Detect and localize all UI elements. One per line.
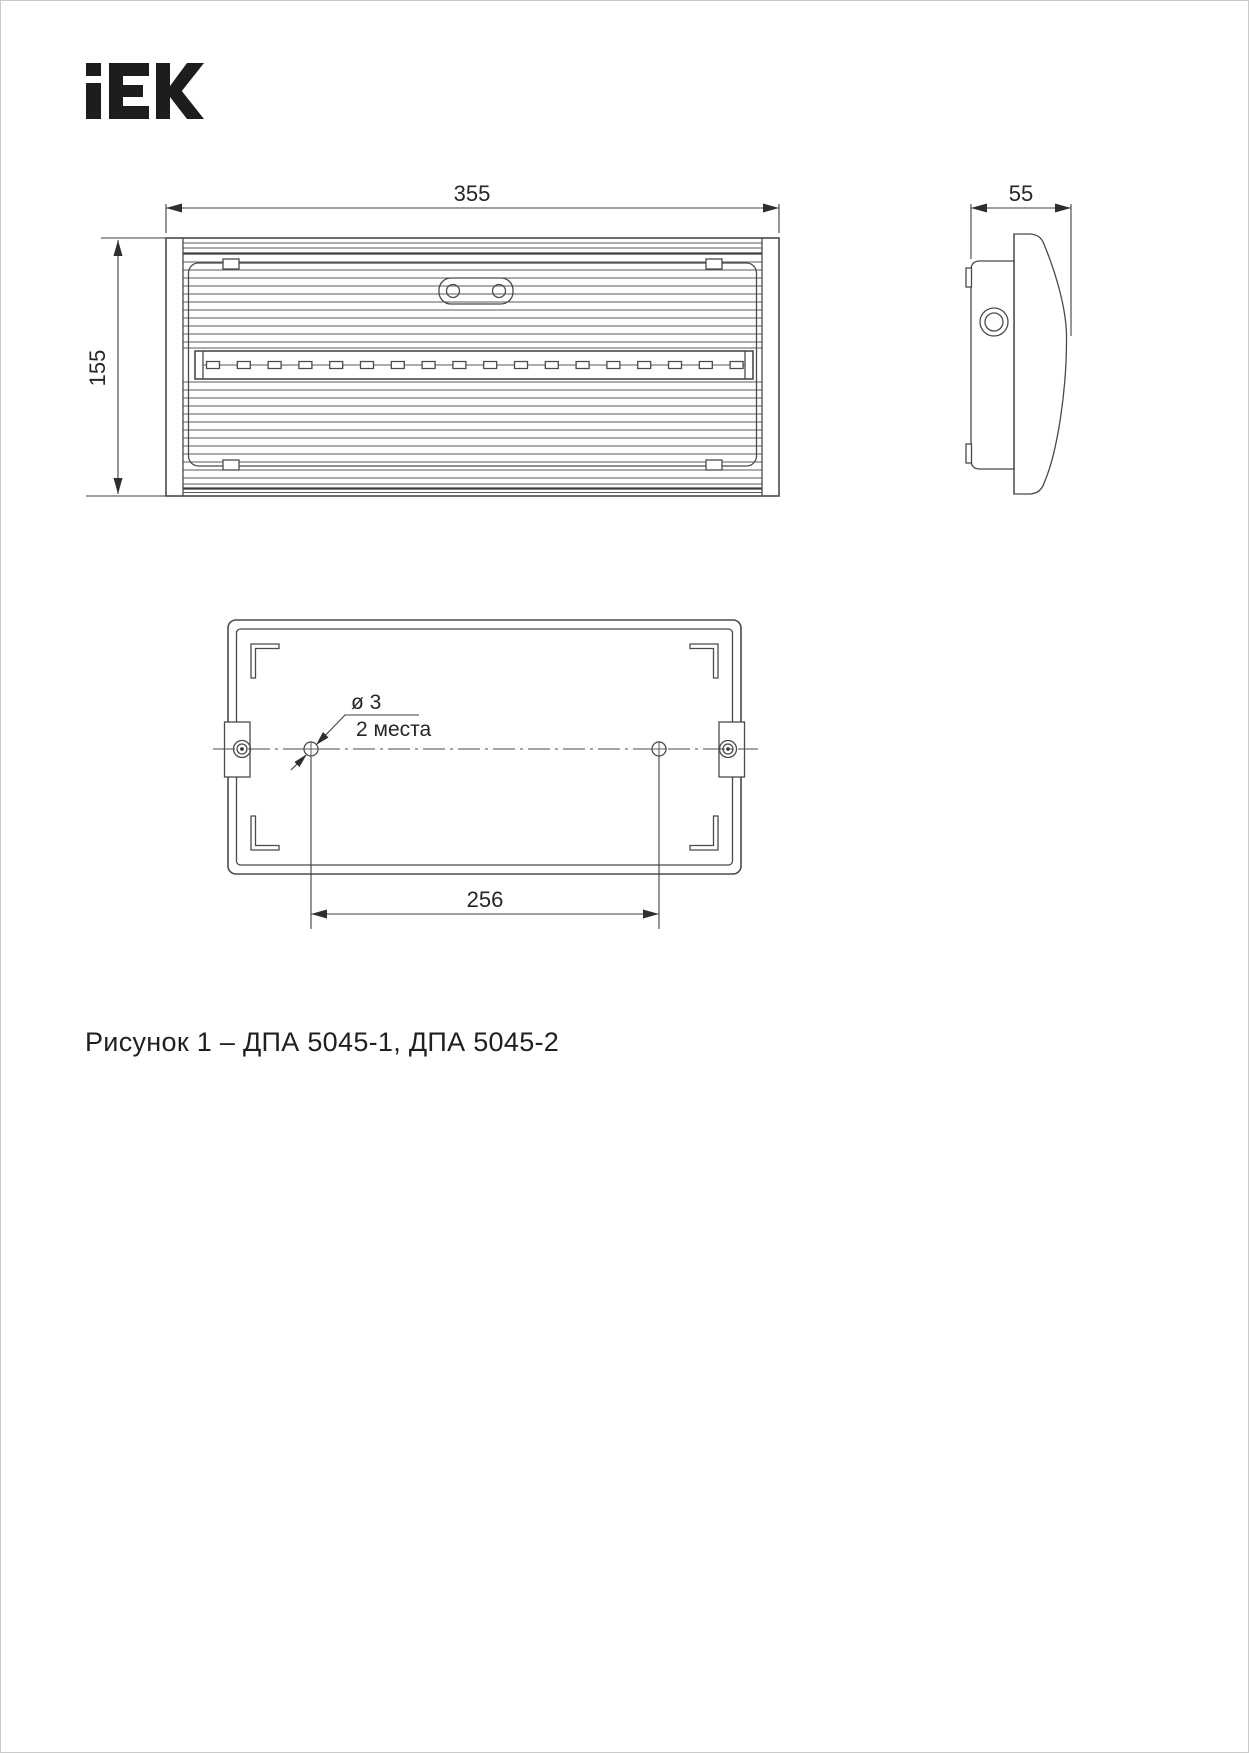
hole-diameter-label: ø 3 <box>351 691 381 714</box>
side-diffuser-profile <box>1014 234 1067 494</box>
dim-front-height-label: 155 <box>85 350 110 387</box>
back-screw-left-dot <box>240 747 244 751</box>
front-view <box>166 238 779 496</box>
figure-caption: Рисунок 1 – ДПА 5045-1, ДПА 5045-2 <box>85 1027 559 1058</box>
back-view <box>213 620 758 874</box>
front-clip-top-right <box>706 259 722 269</box>
dim-hole-spacing-label: 256 <box>467 887 504 912</box>
front-clip-bottom-left <box>223 460 239 470</box>
hole-places-label: 2 места <box>356 718 432 741</box>
front-clip-bottom-right <box>706 460 722 470</box>
front-clip-top-left <box>223 259 239 269</box>
side-tab-bottom <box>966 444 972 463</box>
technical-drawing: 355 155 55 <box>1 1 1249 1101</box>
manual-page: 355 155 55 <box>0 0 1249 1753</box>
dim-front-height: 155 <box>85 238 166 496</box>
side-back-plate <box>971 261 1014 469</box>
side-view <box>966 234 1067 494</box>
dim-side-depth-label: 55 <box>1009 181 1033 206</box>
back-screw-right-dot <box>726 747 730 751</box>
dim-front-width-label: 355 <box>454 181 491 206</box>
dim-front-width: 355 <box>166 181 779 233</box>
side-tab-top <box>966 268 972 287</box>
